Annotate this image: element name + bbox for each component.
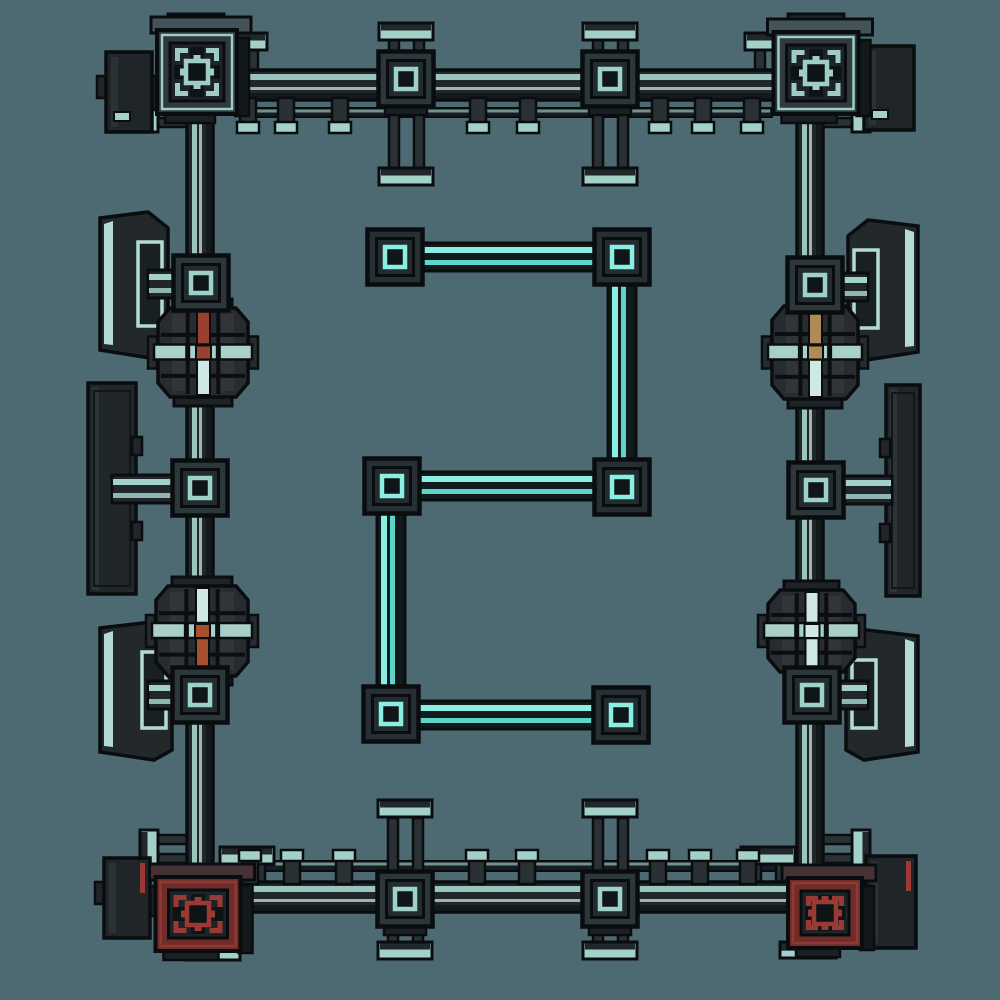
glow-cable-middle[interactable] bbox=[414, 472, 600, 500]
machine-drum-left-top[interactable] bbox=[148, 299, 258, 406]
glow-cable-left-lower[interactable] bbox=[377, 506, 405, 696]
stub-top-c bbox=[329, 98, 351, 133]
glow-cable-bottom[interactable] bbox=[413, 701, 598, 729]
glow-junction-b[interactable] bbox=[595, 230, 650, 285]
stub-bottom-f bbox=[647, 850, 669, 884]
junction-bottom-2[interactable] bbox=[583, 872, 638, 936]
junction-right-3[interactable] bbox=[785, 668, 840, 723]
junction-bottom-1[interactable] bbox=[378, 872, 433, 936]
glow-junction-a[interactable] bbox=[368, 230, 423, 285]
corner-block-bottom-right[interactable] bbox=[782, 865, 876, 957]
rail-top bbox=[240, 108, 772, 117]
junction-right-2[interactable] bbox=[789, 463, 844, 518]
glow-junction-c[interactable] bbox=[595, 460, 650, 515]
stub-top-h bbox=[741, 98, 763, 133]
junction-left-3[interactable] bbox=[173, 668, 228, 723]
stub-top-f bbox=[649, 98, 671, 133]
glow-cable-top[interactable] bbox=[412, 243, 604, 271]
stub-top-e bbox=[517, 98, 539, 133]
stub-bottom-c bbox=[333, 850, 355, 884]
glow-junction-f[interactable] bbox=[594, 688, 649, 743]
stub-bottom-d bbox=[466, 850, 488, 884]
stub-top-g bbox=[692, 98, 714, 133]
corner-block-top-right[interactable] bbox=[768, 19, 873, 123]
junction-left-1[interactable] bbox=[174, 256, 229, 311]
frame-cable-top[interactable] bbox=[190, 70, 812, 100]
stub-bottom-h bbox=[737, 850, 759, 884]
corner-block-bottom-left[interactable] bbox=[150, 864, 255, 960]
stub-bottom-g bbox=[689, 850, 711, 884]
side-block-top-left[interactable] bbox=[97, 52, 162, 132]
frame-cable-bottom[interactable] bbox=[194, 882, 816, 912]
stub-bottom-b bbox=[281, 850, 303, 884]
corner-block-top-left[interactable] bbox=[151, 17, 251, 123]
glow-junction-e[interactable] bbox=[364, 687, 419, 742]
junction-left-2[interactable] bbox=[173, 461, 228, 516]
scene-canvas bbox=[0, 0, 1000, 1000]
glow-junction-d[interactable] bbox=[365, 459, 420, 514]
glow-cable-right-upper[interactable] bbox=[608, 276, 636, 470]
game-viewport bbox=[0, 0, 1000, 1000]
stub-bottom-e bbox=[516, 850, 538, 884]
junction-top-1[interactable] bbox=[379, 52, 434, 116]
junction-top-2[interactable] bbox=[583, 52, 638, 116]
stub-top-b bbox=[275, 98, 297, 133]
stub-top-d bbox=[467, 98, 489, 133]
junction-right-1[interactable] bbox=[788, 258, 843, 313]
